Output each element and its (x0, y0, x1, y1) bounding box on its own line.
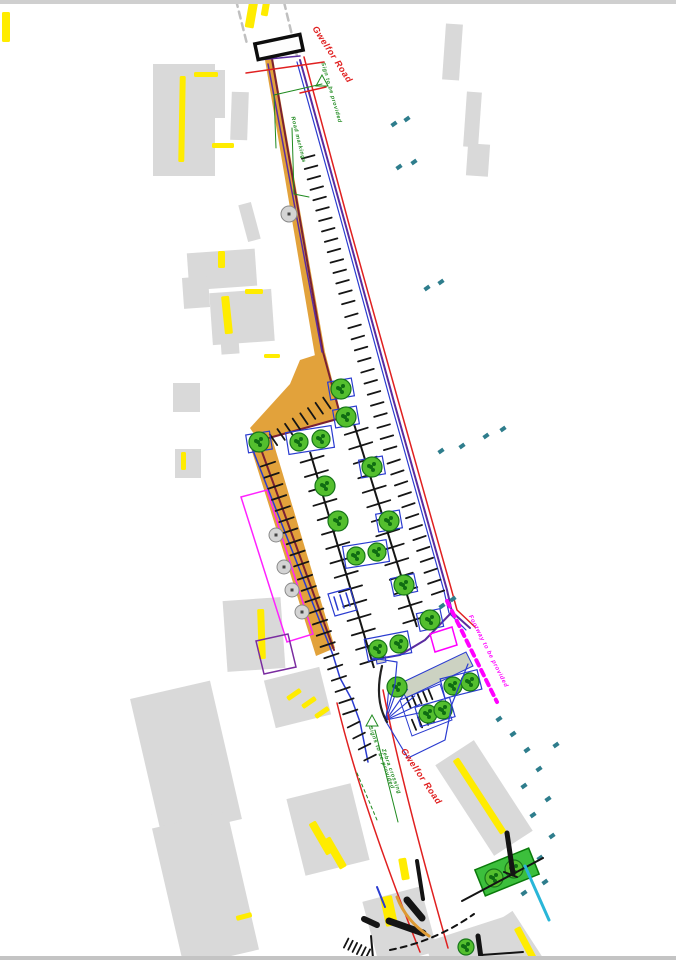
spot-level-mark (552, 742, 559, 749)
road-name-bottom: Gwelfor Road (399, 746, 444, 806)
lighting-column (285, 583, 299, 597)
parking-scheme-plan: Gwelfor RoadGwelfor RoadSign to be provi… (0, 0, 676, 960)
spot-level-mark (520, 783, 527, 790)
spot-level-mark (523, 747, 530, 754)
spot-level-mark (495, 716, 502, 723)
road-edge-dashed (236, 0, 247, 44)
spot-level-mark (482, 433, 489, 440)
building-footprint (220, 337, 239, 354)
page-border-top (0, 0, 676, 4)
bike-tick (340, 595, 344, 608)
tree-symbol (379, 511, 399, 531)
tree-symbol (290, 433, 308, 451)
boundary-purple-east (300, 60, 470, 628)
tree-symbol (249, 432, 269, 452)
yellow-annotation-mark (398, 857, 410, 880)
tree-symbol (328, 511, 348, 531)
yellow-annotation-mark (218, 251, 225, 268)
building-footprint (466, 143, 490, 176)
spot-level-mark (509, 731, 516, 738)
spot-level-mark (520, 890, 527, 897)
spot-level-mark (437, 279, 444, 286)
building-footprint (182, 276, 210, 309)
tree-symbol (387, 677, 407, 697)
lighting-column (281, 206, 297, 222)
spot-level-mark (403, 116, 410, 123)
spot-level-mark (548, 833, 555, 840)
building-footprint (230, 92, 249, 141)
spot-level-mark (390, 121, 397, 128)
tree-symbol (394, 575, 414, 595)
spot-level-mark (544, 796, 551, 803)
spot-level-mark (535, 766, 542, 773)
building-footprint (209, 289, 274, 345)
building-footprint (238, 202, 260, 242)
spot-level-mark (458, 443, 465, 450)
spot-level-mark (423, 285, 430, 292)
tree-symbol (390, 635, 408, 653)
tree-symbol (368, 543, 386, 561)
yellow-annotation-mark (2, 12, 10, 42)
red-crossing-line (246, 62, 324, 73)
spot-level-mark (529, 812, 536, 819)
tree-symbol (312, 430, 330, 448)
tree-symbol (315, 476, 335, 496)
spot-level-mark (395, 164, 402, 171)
bike-tick (334, 597, 338, 610)
yellow-annotation-mark (181, 452, 186, 470)
yellow-annotation-mark (212, 143, 234, 148)
spot-level-mark (410, 159, 417, 166)
lighting-column (295, 605, 309, 619)
tree-symbol (347, 547, 365, 565)
spot-level-mark (541, 879, 548, 886)
lighting-column (277, 560, 291, 574)
footpath-strip (399, 652, 473, 698)
bike-tick (346, 593, 350, 606)
spot-level-mark (499, 426, 506, 433)
building-footprint (286, 783, 369, 876)
building-footprint (264, 667, 331, 728)
yellow-annotation-mark (245, 0, 259, 29)
tree-symbol (331, 379, 351, 399)
spot-level-mark (437, 448, 444, 455)
lighting-column (269, 528, 283, 542)
tree-symbol (362, 457, 382, 477)
yellow-annotation-mark (245, 289, 263, 294)
sign-arrow-bottom (366, 715, 378, 726)
road-name-top: Gwelfor Road (310, 24, 354, 85)
page-border-bottom (0, 956, 676, 960)
footway-orange-elbow (250, 352, 342, 440)
building-footprint (442, 23, 463, 80)
tree-symbol (336, 407, 356, 427)
building-footprint (463, 92, 482, 148)
building-footprint (173, 383, 200, 412)
yellow-annotation-mark (194, 72, 218, 77)
tree-symbol (369, 640, 387, 658)
tree-symbol (420, 610, 440, 630)
green-leader-dashed (357, 773, 377, 820)
yellow-annotation-mark (264, 354, 280, 358)
fan-west-curve (379, 666, 387, 722)
building-footprint (152, 811, 259, 960)
building-footprint (205, 70, 225, 118)
building-footprint (175, 449, 201, 478)
tree-symbol (458, 939, 474, 955)
site-plan-page: Gwelfor RoadGwelfor RoadSign to be provi… (0, 0, 676, 960)
